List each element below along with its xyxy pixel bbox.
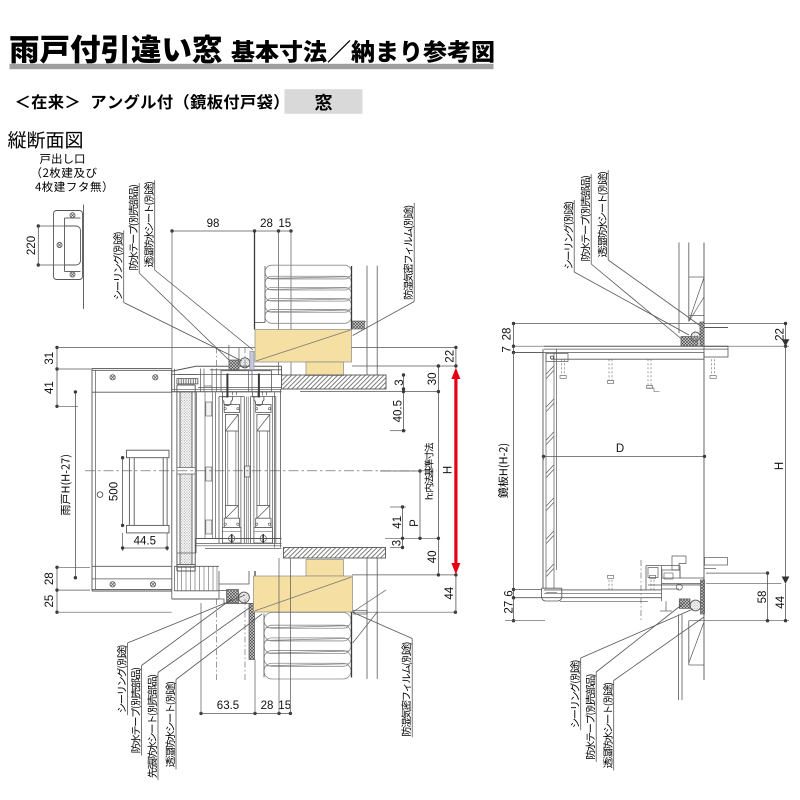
svg-text:41: 41 <box>392 516 404 529</box>
svg-text:28: 28 <box>261 700 274 712</box>
svg-text:3: 3 <box>394 379 406 385</box>
svg-text:63.5: 63.5 <box>217 700 239 712</box>
svg-text:44: 44 <box>444 586 456 599</box>
svg-text:30: 30 <box>427 372 439 385</box>
svg-text:15: 15 <box>278 218 291 230</box>
svg-text:3: 3 <box>391 540 403 546</box>
svg-text:44.5: 44.5 <box>134 536 156 548</box>
svg-text:28: 28 <box>44 572 56 585</box>
svg-text:7: 7 <box>502 346 514 352</box>
svg-text:31: 31 <box>44 352 56 365</box>
svg-text:220: 220 <box>26 236 38 255</box>
svg-text:22: 22 <box>775 328 787 341</box>
svg-text:44: 44 <box>775 595 787 608</box>
svg-text:15: 15 <box>278 700 291 712</box>
svg-text:H: H <box>443 466 455 474</box>
svg-text:6: 6 <box>503 590 515 596</box>
svg-text:500: 500 <box>109 482 121 501</box>
svg-text:98: 98 <box>207 218 220 230</box>
svg-text:D: D <box>616 443 624 455</box>
svg-text:H: H <box>774 462 786 470</box>
svg-text:22: 22 <box>445 350 457 363</box>
svg-text:28: 28 <box>260 218 273 230</box>
svg-text:28: 28 <box>502 328 514 341</box>
svg-text:25: 25 <box>44 595 56 608</box>
svg-text:27: 27 <box>503 601 515 614</box>
svg-text:58: 58 <box>757 591 769 604</box>
svg-text:41: 41 <box>44 381 56 394</box>
svg-text:P: P <box>409 519 421 527</box>
svg-text:40.5: 40.5 <box>393 400 405 422</box>
svg-text:40: 40 <box>427 550 439 563</box>
